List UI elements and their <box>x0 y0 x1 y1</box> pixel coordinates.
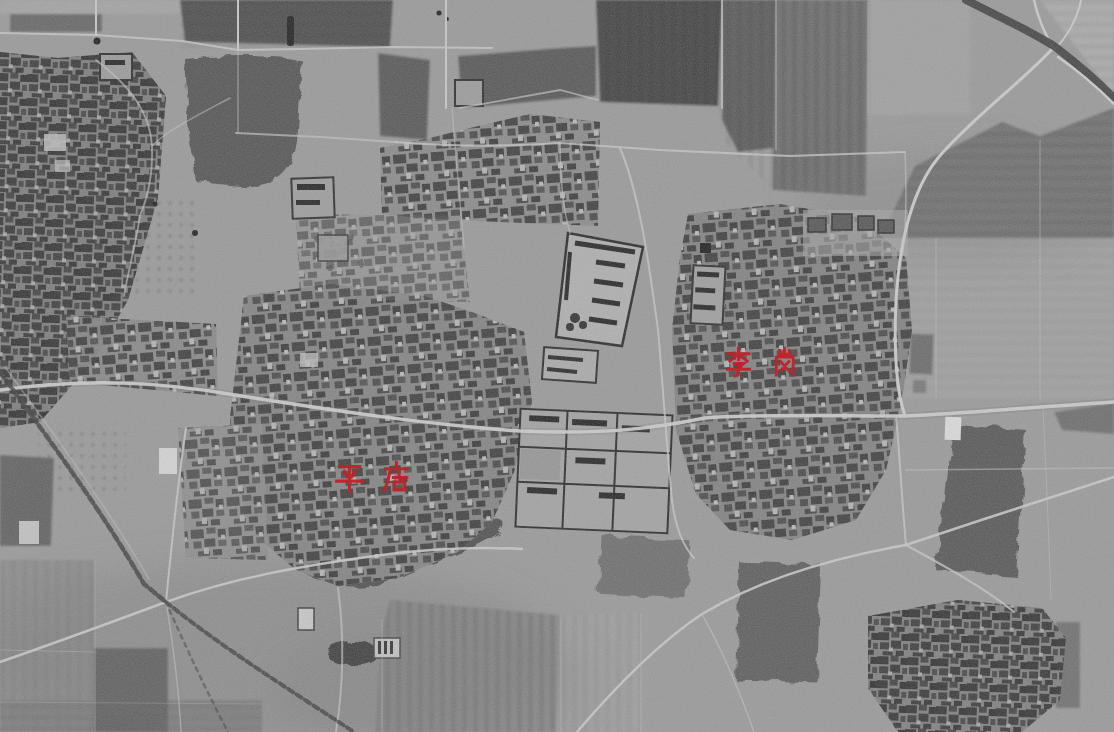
aerial-photo-viewport: 平店 李岗 <box>0 0 1114 732</box>
glyph-ping <box>334 460 365 494</box>
glyph-gang <box>770 346 799 378</box>
place-label-ligang: 李岗 <box>724 346 799 378</box>
glyph-li <box>724 346 753 378</box>
terrain-art <box>0 0 1114 732</box>
place-label-pingdian: 平店 <box>334 460 412 494</box>
glyph-dian <box>381 460 412 494</box>
grain-overlay <box>0 0 1114 732</box>
